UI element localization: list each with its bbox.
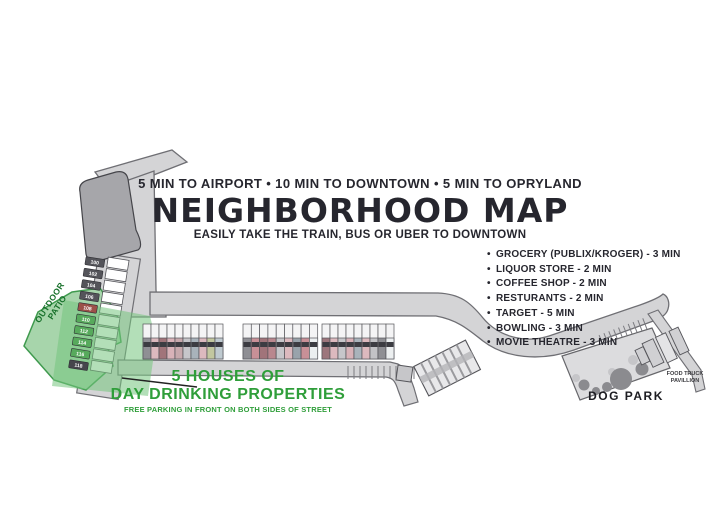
bullet-icon: •	[487, 248, 496, 263]
townhouse-front	[370, 338, 378, 359]
townhouse-front	[378, 338, 386, 359]
amenity-label: COFFEE SHOP - 2 MIN	[496, 278, 607, 289]
amenity-label: LIQUOR STORE - 2 MIN	[496, 264, 612, 275]
townhouse-label-band	[216, 342, 223, 347]
townhouse-front	[260, 338, 268, 359]
townhouse-front	[167, 338, 175, 359]
townhouse-label-band	[323, 342, 330, 347]
amenity-label: RESTURANTS - 2 MIN	[496, 293, 604, 304]
townhouse-front	[251, 338, 259, 359]
townhouse-front	[268, 338, 276, 359]
townhouse-label-band	[268, 342, 275, 347]
townhouse-label-band	[184, 342, 191, 347]
amenity-item: •BOWLING - 3 MIN	[487, 322, 681, 337]
townhouse-label-band	[363, 342, 370, 347]
bullet-icon: •	[487, 322, 496, 337]
bullet-icon: •	[487, 336, 496, 351]
callout-line3: FREE PARKING IN FRONT ON BOTH SIDES OF S…	[108, 406, 348, 414]
day-drinking-callout: 5 HOUSES OF DAY DRINKING PROPERTIES FREE…	[108, 369, 348, 414]
small-building	[396, 365, 413, 382]
bullet-icon: •	[487, 263, 496, 278]
townhouse-label-band	[252, 342, 259, 347]
bullet-icon: •	[487, 307, 496, 322]
townhouse-front	[215, 338, 223, 359]
townhouse-front	[386, 338, 394, 359]
bullet-icon: •	[487, 277, 496, 292]
house-number-text: 112	[79, 328, 88, 335]
tree	[572, 374, 580, 382]
townhouse-front	[362, 338, 370, 359]
townhouse-front	[293, 338, 301, 359]
townhouse-front	[276, 338, 284, 359]
townhouse-label-band	[260, 342, 267, 347]
amenity-item: •TARGET - 5 MIN	[487, 307, 681, 322]
callout-line2: DAY DRINKING PROPERTIES	[108, 387, 348, 403]
amenity-label: GROCERY (PUBLIX/KROGER) - 3 MIN	[496, 249, 681, 260]
townhouse-label-band	[168, 342, 175, 347]
townhouse-label-band	[355, 342, 362, 347]
townhouse-label-band	[244, 342, 251, 347]
townhouse-label-band	[208, 342, 215, 347]
townhouse-label-band	[160, 342, 167, 347]
townhouse-label-band	[339, 342, 346, 347]
bullet-icon: •	[487, 292, 496, 307]
amenity-label: BOWLING - 3 MIN	[496, 323, 583, 334]
amenity-item: •MOVIE THEATRE - 3 MIN	[487, 336, 681, 351]
tree	[610, 368, 632, 390]
townhouse-front	[330, 338, 338, 359]
townhouse-front	[183, 338, 191, 359]
amenity-item: •RESTURANTS - 2 MIN	[487, 292, 681, 307]
food-truck-label-line1: FOOD TRUCK	[659, 371, 711, 378]
townhouse-front	[151, 338, 159, 359]
street-houses	[143, 324, 394, 359]
townhouse-label-band	[371, 342, 378, 347]
townhouse-front	[191, 338, 199, 359]
neighborhood-map-flyer: 100102104106108110112114116118	[0, 0, 720, 526]
townhouse-front	[199, 338, 207, 359]
townhouse-label-band	[379, 342, 386, 347]
townhouse-front	[285, 338, 293, 359]
tree	[628, 355, 638, 365]
townhouse-front	[338, 338, 346, 359]
townhouse-front	[243, 338, 251, 359]
townhouse-front	[159, 338, 167, 359]
house-number-text: 110	[81, 317, 90, 324]
townhouse-label-band	[331, 342, 338, 347]
striped-building	[414, 340, 481, 396]
townhouse-front	[207, 338, 215, 359]
house-number-text: 114	[78, 340, 87, 347]
townhouse-front	[143, 338, 151, 359]
townhouse-label-band	[387, 342, 394, 347]
amenity-label: TARGET - 5 MIN	[496, 308, 575, 319]
amenity-item: •GROCERY (PUBLIX/KROGER) - 3 MIN	[487, 248, 681, 263]
townhouse-front	[309, 338, 317, 359]
townhouse-label-band	[310, 342, 317, 347]
townhouse-label-band	[293, 342, 300, 347]
dog-park-label: DOG PARK	[566, 389, 686, 403]
food-truck-label-line2: PAVILLION	[659, 378, 711, 385]
townhouse-front	[301, 338, 309, 359]
amenity-item: •COFFEE SHOP - 2 MIN	[487, 277, 681, 292]
townhouse-label-band	[285, 342, 292, 347]
map-title: NEIGHBORHOOD MAP	[0, 191, 720, 230]
townhouse-label-band	[347, 342, 354, 347]
townhouse-label-band	[176, 342, 183, 347]
townhouse-label-band	[192, 342, 199, 347]
callout-line1: 5 HOUSES OF	[108, 369, 348, 385]
townhouse-front	[346, 338, 354, 359]
townhouse-label-band	[152, 342, 159, 347]
townhouse-label-band	[200, 342, 207, 347]
map-subtitle: EASILY TAKE THE TRAIN, BUS OR UBER TO DO…	[0, 229, 720, 241]
amenity-item: •LIQUOR STORE - 2 MIN	[487, 263, 681, 278]
townhouse-label-band	[277, 342, 284, 347]
townhouse-label-band	[144, 342, 151, 347]
townhouse-front	[175, 338, 183, 359]
amenity-label: MOVIE THEATRE - 3 MIN	[496, 337, 617, 348]
distances-headline: 5 MIN TO AIRPORT • 10 MIN TO DOWNTOWN • …	[0, 176, 720, 191]
townhouse-label-band	[302, 342, 309, 347]
food-truck-pavillion-label: FOOD TRUCK PAVILLION	[659, 371, 711, 386]
amenities-list: •GROCERY (PUBLIX/KROGER) - 3 MIN•LIQUOR …	[487, 248, 681, 351]
townhouse-front	[322, 338, 330, 359]
townhouse-front	[354, 338, 362, 359]
house-number-text: 116	[76, 351, 85, 358]
house-number-text: 118	[74, 363, 83, 370]
